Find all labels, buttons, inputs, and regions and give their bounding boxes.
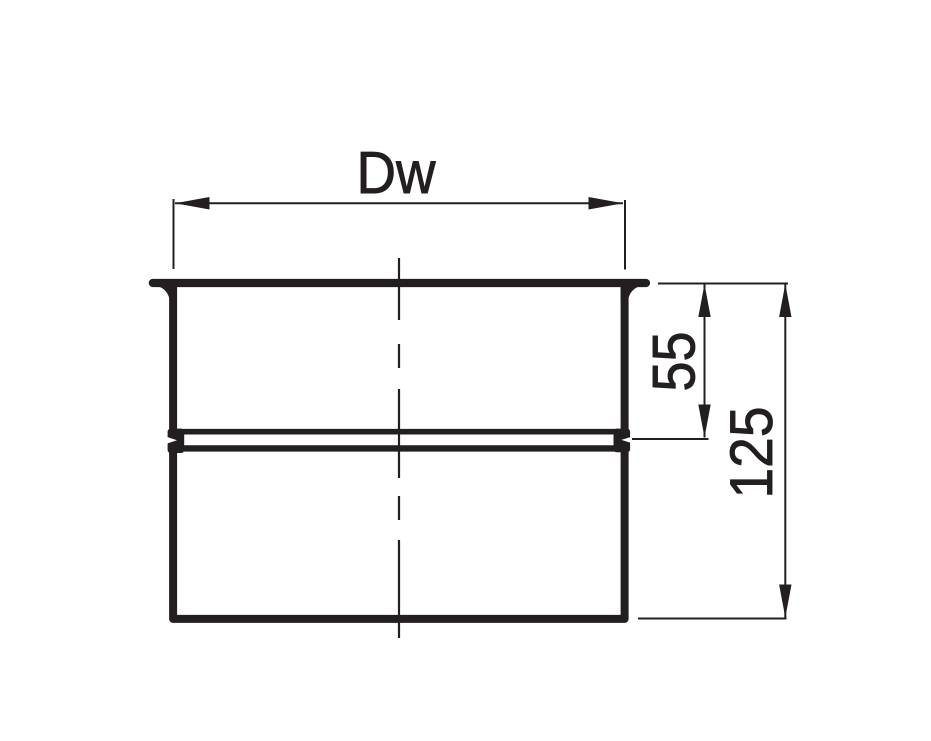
svg-text:55: 55 [641, 332, 708, 392]
svg-text:125: 125 [718, 407, 785, 499]
svg-text:Dw: Dw [357, 140, 436, 206]
